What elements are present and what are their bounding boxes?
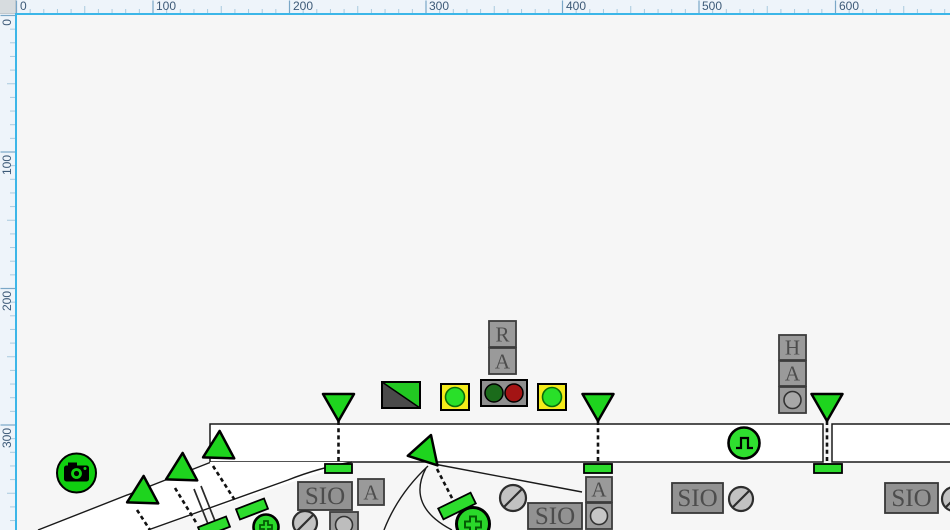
indicator-letter-a: A xyxy=(495,350,511,374)
plus-cross-icon[interactable] xyxy=(254,515,279,530)
ruler-label: 200 xyxy=(1,291,13,311)
canvas-left-edge xyxy=(15,13,17,530)
signal-triangle-icon[interactable] xyxy=(323,394,354,421)
lamp-off-icon xyxy=(336,517,353,530)
ruler-top-ticks xyxy=(0,0,950,13)
ruler-label: 0 xyxy=(20,0,27,12)
signal-triangle-icon[interactable] xyxy=(812,394,843,421)
canvas-top-edge xyxy=(15,13,950,15)
ruler-label: 100 xyxy=(156,0,176,12)
ruler-label: 600 xyxy=(839,0,859,12)
sio-label: SIO xyxy=(891,485,931,512)
turnout-curve-right[interactable] xyxy=(420,468,452,530)
camera-icon[interactable] xyxy=(57,454,96,493)
lamp-off-icon xyxy=(591,508,608,525)
ruler-label: 200 xyxy=(293,0,313,12)
right-track-segment[interactable] xyxy=(832,424,950,462)
indicator-letter-a: A xyxy=(363,481,379,505)
lamp-green-icon xyxy=(485,384,503,402)
track-bar[interactable] xyxy=(325,464,352,473)
track-bar[interactable] xyxy=(584,464,612,473)
no-entry-icon[interactable] xyxy=(942,487,950,511)
lamp-off-icon xyxy=(784,392,801,409)
plus-cross-icon[interactable] xyxy=(457,508,490,530)
no-entry-icon[interactable] xyxy=(729,487,753,511)
ruler-left-ticks xyxy=(0,0,15,530)
no-entry-icon[interactable] xyxy=(293,511,317,530)
track-canvas[interactable]: R A H A SIO SIO SIO SIO A A xyxy=(0,0,950,530)
lamp-yellow-icon[interactable] xyxy=(441,384,469,410)
indicator-letter-r: R xyxy=(495,323,509,347)
indicator-letter-h: H xyxy=(785,336,800,360)
lamp-yellow-icon[interactable] xyxy=(538,384,566,410)
ruler-label: 0 xyxy=(1,19,13,26)
ruler-label: 300 xyxy=(429,0,449,12)
route-split-indicator-icon[interactable] xyxy=(382,382,420,408)
lamp-red-icon xyxy=(505,384,523,402)
signal-lead-dash xyxy=(437,469,453,500)
ruler-label: 500 xyxy=(702,0,722,12)
pulse-wave-icon[interactable] xyxy=(729,428,760,459)
sio-label: SIO xyxy=(535,503,575,530)
signal-triangle-icon[interactable] xyxy=(583,394,614,421)
ruler-label: 100 xyxy=(1,155,13,175)
ruler-label: 400 xyxy=(566,0,586,12)
signal-head-lamps[interactable] xyxy=(481,380,527,406)
sio-label: SIO xyxy=(305,483,345,510)
track-bar[interactable] xyxy=(814,464,842,473)
ruler-label: 300 xyxy=(1,428,13,448)
sio-label: SIO xyxy=(677,485,717,512)
indicator-letter-a: A xyxy=(785,362,801,386)
indicator-letter-a: A xyxy=(591,478,607,502)
no-entry-icon[interactable] xyxy=(500,485,526,511)
